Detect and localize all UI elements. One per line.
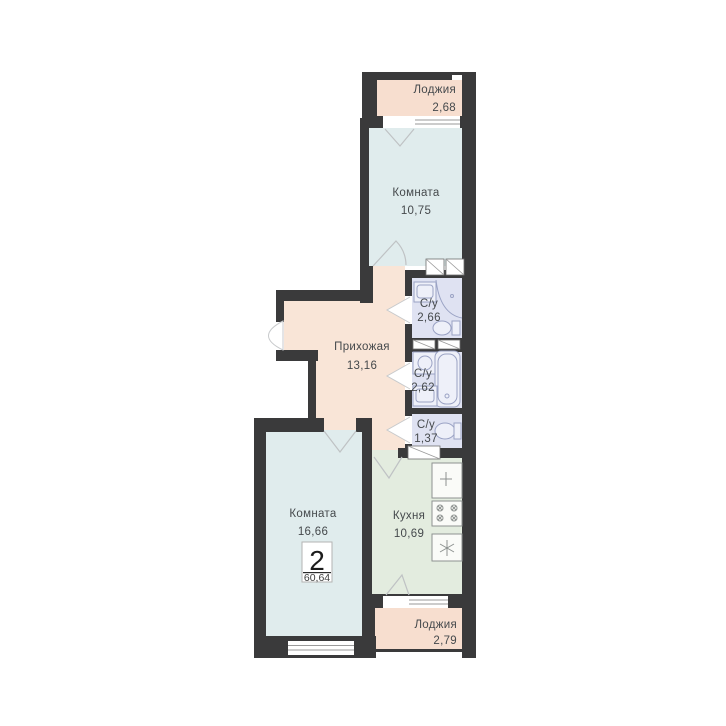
- balcony-door-bottom: [383, 596, 409, 608]
- area-bathroom-3: 1,37: [414, 433, 438, 445]
- label-loggia-bottom: Лоджия: [414, 619, 457, 631]
- balcony-block-top: [383, 116, 460, 128]
- label-bathroom-3: С/у: [417, 419, 435, 431]
- area-kitchen: 10,69: [394, 528, 424, 540]
- floor-plan-svg: Лоджия 2,68 Комната 10,75 С/у 2,66 Прихо…: [0, 0, 726, 726]
- area-room-top: 10,75: [401, 205, 431, 217]
- window-bottom: [409, 596, 448, 608]
- floor-plan: Лоджия 2,68 Комната 10,75 С/у 2,66 Прихо…: [0, 0, 726, 726]
- area-bathroom-2: 2,62: [411, 382, 435, 394]
- balcony-door-top: [383, 116, 415, 128]
- label-room-main: Комната: [289, 508, 336, 520]
- area-bathroom-1: 2,66: [417, 312, 441, 324]
- label-bathroom-2: С/у: [414, 368, 432, 380]
- kitchen-counter: [432, 463, 462, 561]
- stove-icon: [432, 501, 462, 526]
- window-top: [415, 116, 460, 128]
- label-hallway: Прихожая: [334, 341, 390, 353]
- area-loggia-top: 2,68: [432, 102, 456, 114]
- kitchen-sink-icon: [432, 463, 462, 498]
- badge-total-area: 60,64: [304, 572, 330, 584]
- room-main-window: [288, 641, 354, 655]
- toilet-icon: [435, 423, 455, 439]
- label-kitchen: Кухня: [393, 510, 425, 522]
- balcony-block-bottom: [383, 596, 448, 608]
- area-loggia-bottom: 2,79: [433, 635, 457, 647]
- area-room-main: 16,66: [298, 526, 328, 538]
- label-room-top: Комната: [392, 187, 439, 199]
- apartment-badge: 2 60,64: [302, 542, 332, 584]
- bathroom-3-fixtures: [435, 423, 461, 439]
- entrance-door-icon: [269, 321, 284, 350]
- area-hallway: 13,16: [347, 360, 377, 372]
- label-loggia-top: Лоджия: [413, 84, 456, 96]
- label-bathroom-1: С/у: [420, 298, 438, 310]
